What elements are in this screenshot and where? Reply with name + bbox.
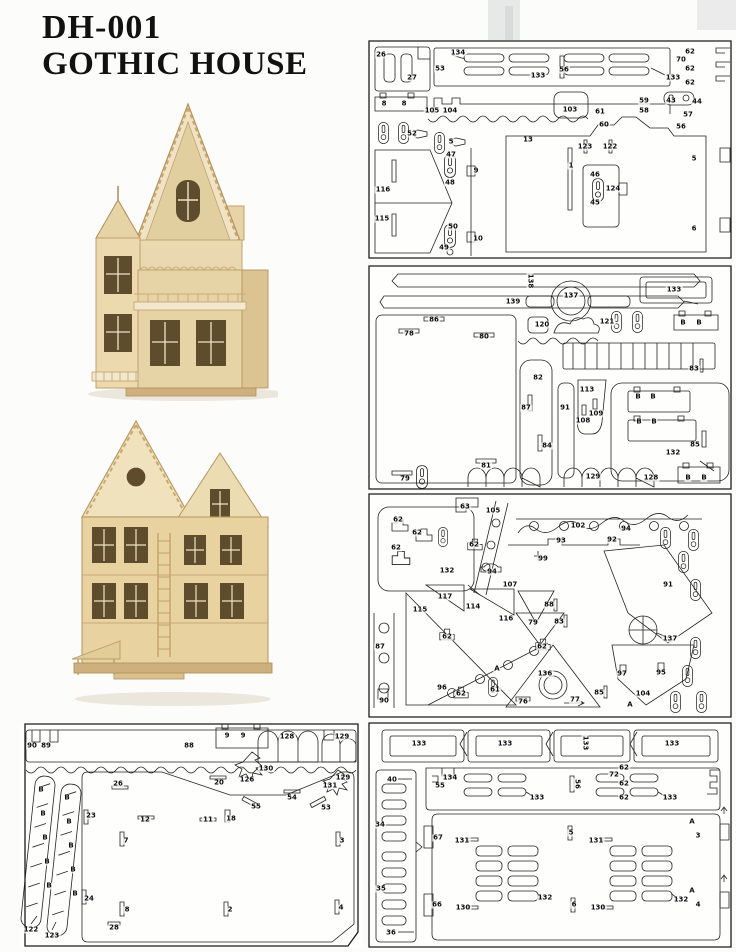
instruction-sheet-page: DH-001 GOTHIC HOUSE	[0, 0, 736, 952]
part-number-label: 56	[675, 124, 687, 131]
part-number-label: 85	[689, 442, 701, 449]
part-number-label: 89	[40, 743, 52, 750]
part-number-label: 53	[434, 66, 446, 73]
part-number-label: 62	[390, 545, 402, 552]
part-number-label: 11	[202, 817, 214, 824]
part-number-label: 46	[589, 172, 601, 179]
part-number-label: 131	[588, 838, 605, 845]
part-number-label: 129	[335, 775, 352, 782]
part-number-label: 133	[530, 73, 547, 80]
part-number-label: 62	[618, 781, 630, 788]
part-number-label: B	[37, 787, 44, 794]
part-number-label: 79	[399, 476, 411, 483]
part-number-label: B	[684, 475, 691, 482]
assembled-house-photo-angle	[58, 405, 288, 715]
part-number-label: 88	[543, 602, 555, 609]
part-number-label: B	[43, 859, 50, 866]
part-number-label: 62	[618, 795, 630, 802]
part-number-label: 9	[240, 733, 247, 740]
part-number-label: 27	[406, 75, 418, 82]
part-number-label: 53	[320, 805, 332, 812]
part-number-label: 13	[522, 137, 534, 144]
scan-artifact	[697, 0, 736, 30]
model-number: DH-001	[42, 10, 307, 46]
part-number-label: 84	[541, 443, 553, 450]
part-number-label: 116	[375, 187, 392, 194]
part-number-label: 70	[675, 57, 687, 64]
part-number-label: 132	[665, 450, 682, 457]
part-number-label: 133	[665, 75, 682, 82]
part-number-label: 133	[664, 741, 681, 748]
part-number-label: 129	[585, 474, 602, 481]
part-number-label: 123	[44, 933, 61, 940]
part-number-label: 6	[571, 902, 578, 909]
part-number-label: 3	[695, 833, 702, 840]
scan-artifact	[505, 6, 513, 40]
part-number-label: 76	[517, 699, 529, 706]
part-number-label: 62	[392, 517, 404, 524]
part-number-label: 26	[375, 52, 387, 59]
part-number-label: 54	[286, 795, 298, 802]
part-number-label: 93	[555, 538, 567, 545]
part-number-label: 91	[559, 405, 571, 412]
part-number-label: B	[700, 475, 707, 482]
part-number-label: 137	[662, 636, 679, 643]
part-number-label: 56	[558, 67, 570, 74]
part-number-label: 47	[445, 152, 457, 159]
part-number-label: 35	[375, 886, 387, 893]
part-number-label: 3	[339, 838, 346, 845]
part-number-label: B	[45, 883, 52, 890]
model-name: GOTHIC HOUSE	[42, 46, 307, 82]
part-number-label: 62	[618, 765, 630, 772]
part-number-label: 90	[26, 743, 38, 750]
part-number-label: 94	[620, 526, 632, 533]
part-number-label: 113	[579, 387, 596, 394]
house-angle-illustration	[58, 405, 288, 710]
part-number-label: B	[67, 843, 74, 850]
part-number-label: 130	[590, 905, 607, 912]
part-number-label: 121	[599, 319, 616, 326]
parts-sheet-b: 138139867880120137133121BB83828784911131…	[368, 265, 732, 490]
part-number-label: 57	[682, 112, 694, 119]
part-number-label: 7	[123, 838, 130, 845]
part-number-label: 26	[112, 781, 124, 788]
part-number-label: 28	[108, 925, 120, 932]
part-number-label: 66	[431, 902, 443, 909]
scan-artifact	[488, 0, 520, 42]
part-number-label: 133	[529, 795, 546, 802]
part-number-label: 52	[406, 131, 418, 138]
part-number-label: 115	[412, 607, 429, 614]
part-number-label: 114	[465, 604, 482, 611]
part-number-label: 4	[695, 902, 702, 909]
part-number-label: 24	[83, 896, 95, 903]
part-number-label: 108	[575, 418, 592, 425]
part-number-label: 40	[386, 777, 398, 784]
part-number-label: 43	[665, 98, 677, 105]
part-number-label: 126	[239, 777, 256, 784]
part-number-label: 62	[536, 644, 548, 651]
part-number-label: 128	[643, 475, 660, 482]
part-number-label: 104	[635, 691, 652, 698]
part-number-label: A	[688, 888, 695, 895]
part-number-label: 102	[570, 523, 587, 530]
part-number-label: 36	[385, 930, 397, 937]
part-number-label: 34	[374, 822, 386, 829]
part-number-label: A	[493, 666, 500, 673]
part-number-label: 107	[502, 582, 519, 589]
part-number-label: 9	[224, 733, 231, 740]
part-number-label: 4	[338, 905, 345, 912]
part-number-label: 81	[480, 463, 492, 470]
sheet-e-labels: 1331331331334013455133567262626213334353…	[368, 722, 732, 948]
part-number-label: B	[69, 867, 76, 874]
sheet-d-labels: 9089889912812926130126201311292312545553…	[20, 722, 363, 948]
part-number-label: 123	[577, 144, 594, 151]
part-number-label: 8	[381, 101, 388, 108]
part-number-label: 62	[441, 634, 453, 641]
part-number-label: 10	[472, 236, 484, 243]
part-number-label: 61	[594, 109, 606, 116]
part-number-label: B	[63, 795, 70, 802]
part-number-label: B	[71, 891, 78, 898]
part-number-label: 8	[401, 101, 408, 108]
part-number-label: 134	[450, 50, 467, 57]
part-number-label: 132	[537, 895, 554, 902]
part-number-label: 59	[638, 98, 650, 105]
part-number-label: 8	[124, 907, 131, 914]
part-number-label: 105	[485, 508, 502, 515]
part-number-label: 133	[582, 735, 589, 752]
part-number-label: 6	[691, 226, 698, 233]
part-number-label: 94	[486, 569, 498, 576]
house-front-illustration	[38, 88, 278, 403]
part-number-label: 132	[439, 568, 456, 575]
part-number-label: 103	[562, 107, 579, 114]
part-number-label: 63	[459, 504, 471, 511]
part-number-label: 105	[424, 108, 441, 115]
part-number-label: 137	[563, 293, 580, 300]
part-number-label: 130	[455, 905, 472, 912]
part-number-label: 117	[437, 594, 454, 601]
part-number-label: 128	[279, 734, 296, 741]
part-number-label: 131	[454, 838, 471, 845]
part-number-label: 12	[139, 817, 151, 824]
part-number-label: 133	[497, 741, 514, 748]
part-number-label: 2	[227, 907, 234, 914]
part-number-label: 67	[432, 835, 444, 842]
part-number-label: 91	[662, 582, 674, 589]
part-number-label: B	[39, 811, 46, 818]
parts-sheet-a: 2627531341335613362706262881051045251310…	[368, 40, 732, 259]
part-number-label: 78	[403, 331, 415, 338]
part-number-label: 5	[691, 156, 698, 163]
part-number-label: 131	[322, 783, 339, 790]
part-number-label: 1	[568, 163, 575, 170]
part-number-label: 9	[473, 168, 480, 175]
part-number-label: 104	[442, 108, 459, 115]
part-number-label: 5	[568, 830, 575, 837]
part-number-label: 88	[183, 743, 195, 750]
part-number-label: A	[626, 702, 633, 709]
part-number-label: 62	[468, 542, 480, 549]
sheet-a-labels: 2627531341335613362706262881051045251310…	[368, 40, 732, 259]
part-number-label: 83	[688, 366, 700, 373]
part-number-label: B	[41, 835, 48, 842]
part-number-label: 83	[553, 619, 565, 626]
part-number-label: 86	[428, 317, 440, 324]
parts-sheet-c: 6262621326362941051079911710293929491115…	[368, 493, 732, 718]
part-number-label: 134	[442, 775, 459, 782]
part-number-label: 122	[602, 144, 619, 151]
part-number-label: 116	[498, 616, 515, 623]
part-number-label: 62	[411, 530, 423, 537]
part-number-label: 55	[434, 783, 446, 790]
part-number-label: 60	[598, 122, 610, 129]
part-number-label: 50	[447, 224, 459, 231]
title-block: DH-001 GOTHIC HOUSE	[42, 10, 307, 82]
part-number-label: A	[688, 819, 695, 826]
part-number-label: 124	[605, 186, 622, 193]
part-number-label: 55	[250, 804, 262, 811]
part-number-label: 82	[532, 375, 544, 382]
part-number-label: B	[635, 419, 642, 426]
part-number-label: 96	[436, 685, 448, 692]
part-number-label: 99	[537, 556, 549, 563]
part-number-label: 136	[537, 671, 554, 678]
part-number-label: B	[650, 419, 657, 426]
part-number-label: 80	[478, 334, 490, 341]
part-number-label: 132	[673, 897, 690, 904]
part-number-label: 92	[606, 537, 618, 544]
sheet-b-labels: 138139867880120137133121BB83828784911131…	[368, 265, 732, 490]
part-number-label: 62	[455, 691, 467, 698]
part-number-label: 77	[569, 697, 581, 704]
part-number-label: 48	[444, 180, 456, 187]
part-number-label: 130	[258, 766, 275, 773]
part-number-label: 44	[691, 99, 703, 106]
part-number-label: 90	[378, 698, 390, 705]
part-number-label: 79	[527, 620, 539, 627]
part-number-label: 45	[589, 200, 601, 207]
part-number-label: 122	[23, 927, 40, 934]
part-number-label: 87	[374, 644, 386, 651]
parts-sheet-d: 9089889912812926130126201311292312545553…	[20, 722, 363, 948]
part-number-label: 18	[225, 816, 237, 823]
part-number-label: 133	[662, 795, 679, 802]
part-number-label: 49	[438, 245, 450, 252]
part-number-label: 62	[684, 49, 696, 56]
part-number-label: 139	[505, 299, 522, 306]
part-number-label: 62	[684, 66, 696, 73]
part-number-label: 56	[574, 778, 581, 790]
part-number-label: 23	[85, 813, 97, 820]
part-number-label: 20	[213, 780, 225, 787]
part-number-label: 62	[684, 80, 696, 87]
part-number-label: B	[65, 819, 72, 826]
assembled-house-photo-front	[38, 88, 278, 403]
part-number-label: 95	[655, 670, 667, 677]
part-number-label: B	[634, 394, 641, 401]
part-number-label: 61	[489, 687, 501, 694]
part-number-label: 97	[616, 671, 628, 678]
part-number-label: 109	[588, 411, 605, 418]
part-number-label: 87	[520, 405, 532, 412]
part-number-label: 72	[608, 772, 620, 779]
part-number-label: 5	[448, 139, 455, 146]
part-number-label: 133	[411, 741, 428, 748]
parts-sheet-e: 1331331331334013455133567262626213334353…	[368, 722, 732, 948]
part-number-label: B	[649, 394, 656, 401]
part-number-label: 85	[593, 690, 605, 697]
part-number-label: 58	[638, 108, 650, 115]
part-number-label: B	[695, 320, 702, 327]
part-number-label: 120	[534, 322, 551, 329]
part-number-label: 133	[666, 287, 683, 294]
part-number-label: 129	[334, 734, 351, 741]
part-number-label: 115	[374, 216, 391, 223]
sheet-c-labels: 6262621326362941051079911710293929491115…	[368, 493, 732, 718]
part-number-label: 138	[527, 273, 534, 290]
part-number-label: B	[679, 320, 686, 327]
